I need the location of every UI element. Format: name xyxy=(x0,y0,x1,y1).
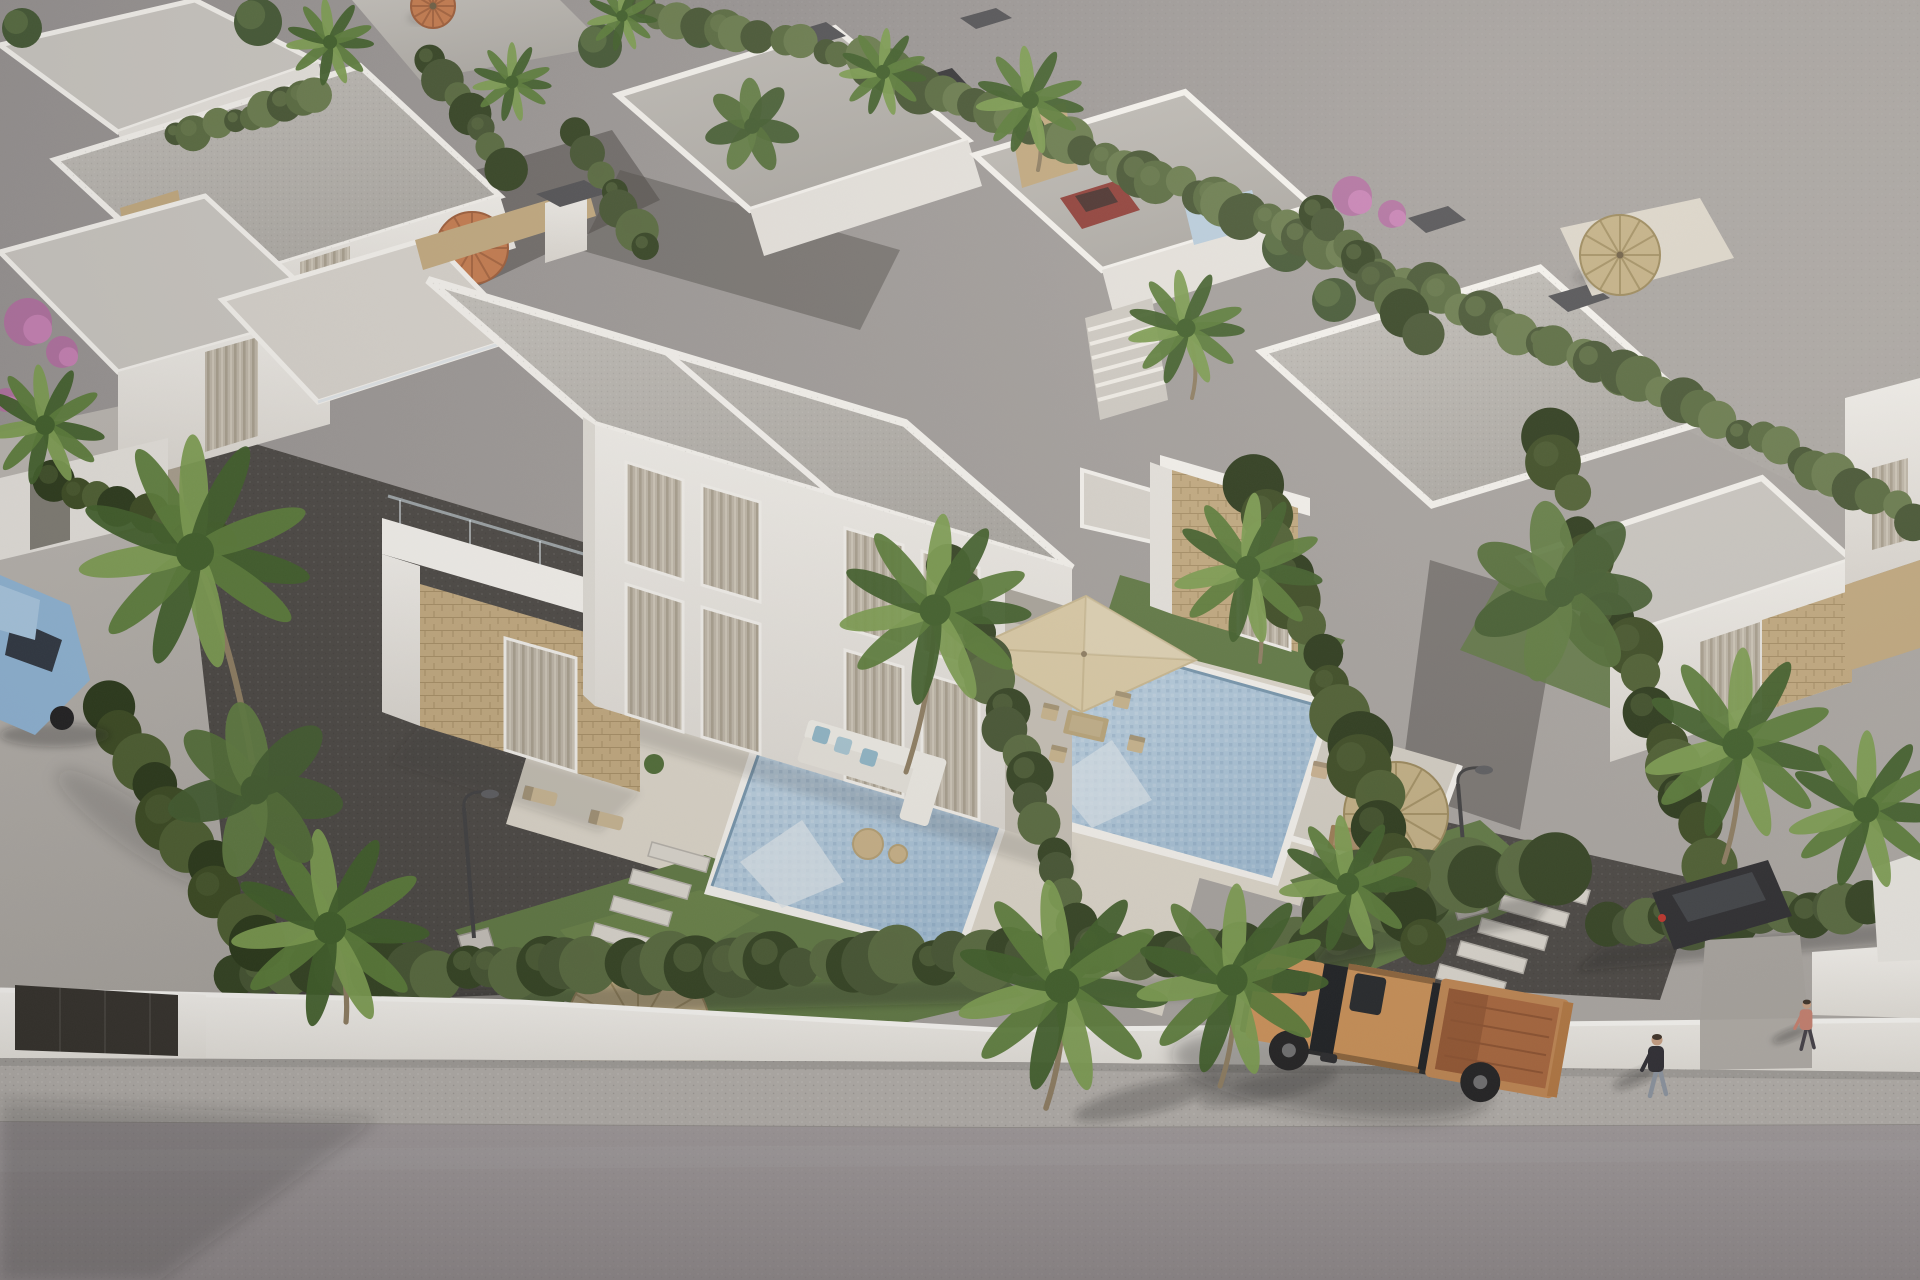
render-stage xyxy=(0,0,1920,1280)
grain-overlay xyxy=(0,0,1920,1280)
aerial-render xyxy=(0,0,1920,1280)
